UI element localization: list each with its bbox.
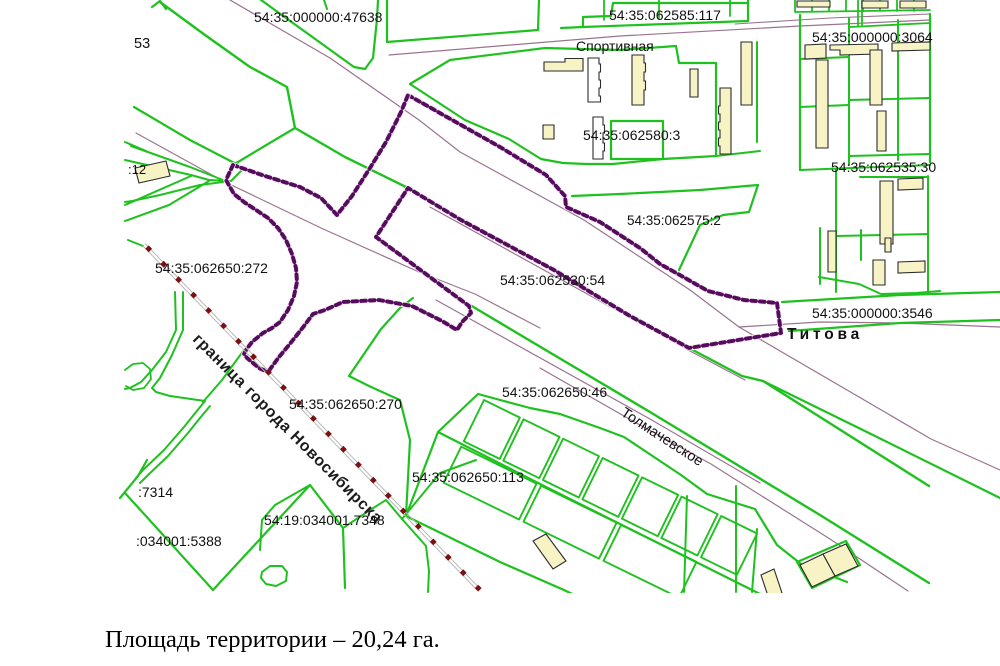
svg-text:54:35:000000:3546: 54:35:000000:3546 <box>812 305 933 321</box>
svg-text::7314: :7314 <box>138 484 173 500</box>
svg-text:54:35:000000:47638: 54:35:000000:47638 <box>254 9 383 25</box>
svg-text:54:35:062650:270: 54:35:062650:270 <box>289 396 402 412</box>
svg-text:53: 53 <box>134 36 150 52</box>
svg-text:54:35:062575:2: 54:35:062575:2 <box>627 213 721 228</box>
svg-text:Площадь территории – 20,24 га.: Площадь территории – 20,24 га. <box>105 626 440 653</box>
svg-text:54:35:062650:46: 54:35:062650:46 <box>502 384 607 400</box>
svg-text:54:19:034001.7348: 54:19:034001.7348 <box>264 512 385 528</box>
svg-text:54:35:062650:272: 54:35:062650:272 <box>155 260 268 276</box>
svg-text:54:35:062535:30: 54:35:062535:30 <box>831 159 936 175</box>
svg-text:54:35:062530:54: 54:35:062530:54 <box>500 272 605 288</box>
svg-text:54:35:062650:113: 54:35:062650:113 <box>412 469 524 485</box>
svg-text:54:35:000000:3064: 54:35:000000:3064 <box>812 29 933 45</box>
svg-text:54:35:062585:117: 54:35:062585:117 <box>609 7 721 23</box>
svg-text:Спортивная: Спортивная <box>576 38 654 54</box>
svg-text:54:35:062580:3: 54:35:062580:3 <box>583 127 681 143</box>
svg-text:Титова: Титова <box>787 326 863 343</box>
svg-text::034001:5388: :034001:5388 <box>136 533 222 549</box>
svg-text::12: :12 <box>128 162 146 177</box>
